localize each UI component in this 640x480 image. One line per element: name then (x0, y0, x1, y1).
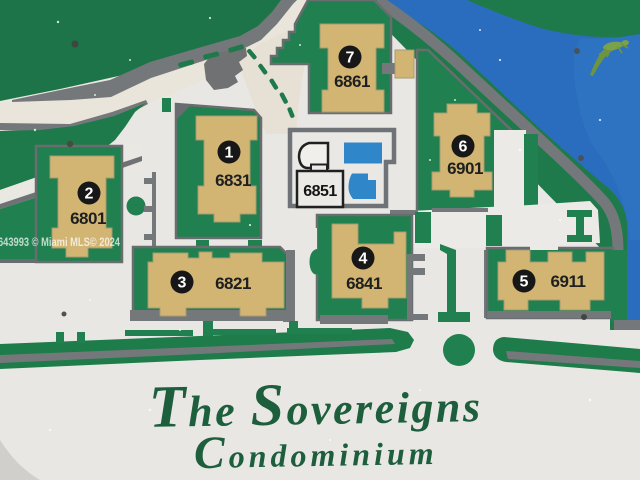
svg-text:6841: 6841 (346, 274, 382, 293)
svg-text:6901: 6901 (447, 159, 483, 178)
svg-text:6831: 6831 (215, 171, 251, 190)
svg-text:2: 2 (85, 186, 94, 203)
svg-text:5: 5 (520, 274, 529, 291)
svg-text:6911: 6911 (551, 272, 586, 291)
svg-text:6861: 6861 (334, 72, 370, 91)
svg-text:3: 3 (178, 275, 187, 292)
svg-text:643993 © Miami MLS© 2024: 643993 © Miami MLS© 2024 (0, 237, 120, 249)
svg-text:1: 1 (225, 145, 234, 162)
svg-text:4: 4 (359, 251, 368, 268)
svg-text:6821: 6821 (215, 274, 251, 293)
svg-text:6851: 6851 (303, 183, 337, 200)
svg-text:6801: 6801 (70, 209, 106, 228)
svg-text:6: 6 (459, 139, 468, 156)
svg-text:7: 7 (346, 50, 355, 67)
